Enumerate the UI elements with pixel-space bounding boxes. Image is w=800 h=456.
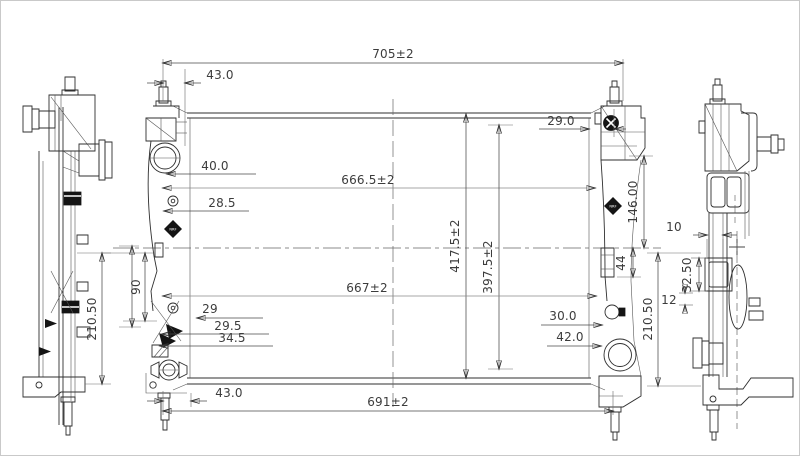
radiator-core bbox=[113, 99, 661, 407]
side-tab bbox=[601, 248, 614, 277]
right-side-view bbox=[693, 79, 793, 440]
left-core-gasket bbox=[184, 113, 188, 384]
left-side-view bbox=[23, 77, 112, 435]
dim-lower-left-d3: 34.5 bbox=[218, 331, 246, 345]
outlet-port bbox=[63, 140, 112, 180]
dim-overall-height: 417.5±2 bbox=[448, 219, 462, 272]
dim-left-view-height: 210.50 bbox=[85, 297, 99, 340]
dim-core-height: 397.5±2 bbox=[481, 240, 495, 293]
dim-bottom-width: 691±2 bbox=[367, 395, 409, 409]
dim-left-bracket-span: 90 bbox=[129, 279, 143, 295]
dimension-labels: 705±2 43.0 29.0 40.0 666.5±2 28.5 146.00… bbox=[85, 47, 694, 409]
drain-valve bbox=[151, 360, 187, 380]
left-tank bbox=[146, 81, 187, 430]
top-right-bracket bbox=[601, 106, 645, 160]
radiator-technical-drawing: 705±2 43.0 29.0 40.0 666.5±2 28.5 146.00… bbox=[0, 0, 800, 456]
mount-pin-bottom bbox=[710, 410, 718, 432]
dim-right-view-height: 210.50 bbox=[641, 297, 655, 340]
section-arrow bbox=[39, 347, 51, 356]
drawing-canvas: 705±2 43.0 29.0 40.0 666.5±2 28.5 146.00… bbox=[1, 1, 799, 455]
dim-bottom-left-offset: 43.0 bbox=[215, 386, 243, 400]
mount-hole bbox=[605, 305, 619, 319]
section-arrow bbox=[45, 319, 57, 328]
dim-bolt-offset: 28.5 bbox=[208, 196, 236, 210]
main-front-view bbox=[113, 81, 661, 440]
mount-foot bbox=[23, 377, 85, 397]
dim-outlet-hole-offset: 30.0 bbox=[549, 309, 577, 323]
tank-edge bbox=[601, 160, 607, 301]
nrf-logo-text-left: NRF bbox=[169, 228, 176, 232]
bolt-upper bbox=[168, 196, 178, 206]
nrf-logo-text-right: NRF bbox=[609, 205, 616, 209]
mount-pin bbox=[64, 402, 72, 426]
dim-top-right-offset: 29.0 bbox=[547, 114, 575, 128]
rubber-mount-upper bbox=[64, 192, 81, 205]
hose-connector bbox=[693, 338, 723, 368]
core-fins-hatch bbox=[191, 115, 241, 165]
dim-right-tab-height: 44 bbox=[614, 255, 628, 271]
mount-pin-bottom-right bbox=[611, 412, 619, 432]
dim-side-block-height: 32.50 bbox=[680, 257, 694, 292]
connector-arm bbox=[757, 135, 784, 153]
dim-outlet-offset: 42.0 bbox=[556, 330, 584, 344]
dim-top-left-offset: 43.0 bbox=[206, 68, 234, 82]
right-core-gasket bbox=[591, 113, 595, 384]
filler-neck bbox=[65, 77, 75, 91]
dim-upper-core-width: 666.5±2 bbox=[341, 173, 394, 187]
dim-right-bracket-height: 146.00 bbox=[626, 180, 640, 223]
inlet-hose-connector bbox=[23, 106, 55, 132]
dim-filler-offset: 40.0 bbox=[201, 159, 229, 173]
dim-side-gap: 12 bbox=[661, 293, 677, 307]
dim-lower-left-d1: 29 bbox=[202, 302, 218, 316]
tank-edge bbox=[148, 141, 157, 271]
dim-lower-core-width: 667±2 bbox=[346, 281, 388, 295]
dim-side-band-width: 10 bbox=[666, 220, 682, 234]
bottom-right-bracket bbox=[599, 376, 641, 407]
drain-body bbox=[152, 345, 168, 357]
upper-bracket-profile bbox=[705, 104, 749, 171]
mount-foot bbox=[703, 375, 793, 405]
dim-overall-width: 705±2 bbox=[372, 47, 414, 61]
dimension-lines bbox=[101, 59, 737, 415]
fan-shroud-ellipse bbox=[729, 265, 747, 329]
